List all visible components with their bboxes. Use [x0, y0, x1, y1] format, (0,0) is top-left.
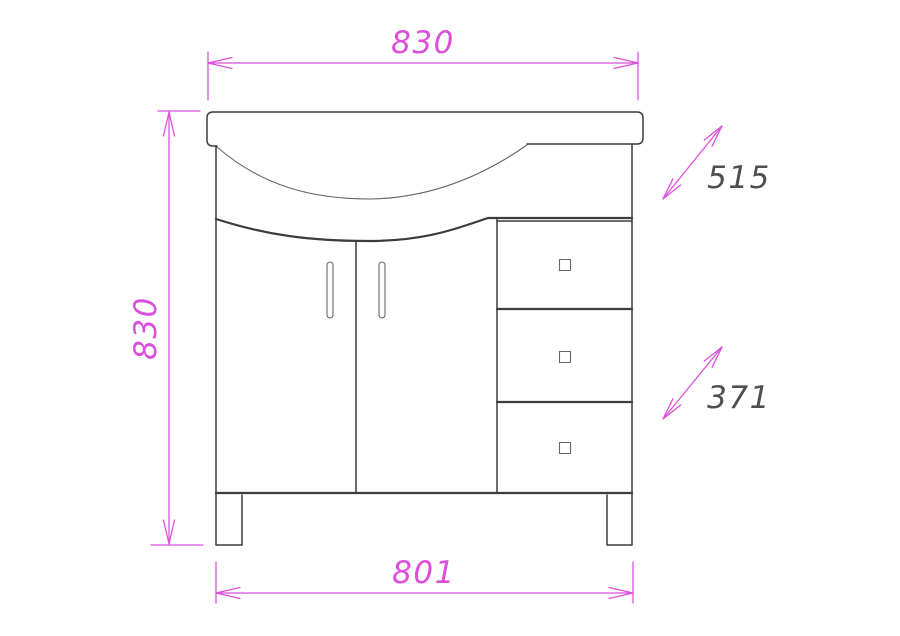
bottom-width-label: 801	[392, 555, 456, 591]
left-door-handle	[327, 262, 333, 318]
top-width-label: 830	[391, 25, 455, 61]
dimension-lines-group	[151, 52, 722, 603]
left-height-label: 830	[128, 296, 164, 360]
drawer-knob-2	[560, 352, 571, 363]
right-door-handle	[379, 262, 385, 318]
cabinet-outline-group	[207, 112, 643, 545]
upper-diagonal-depth-label: 515	[707, 160, 771, 196]
vanity-dimension-drawing: 830 830 801 515 371	[0, 0, 900, 636]
left-leg	[216, 493, 242, 545]
basin-bowl-curve	[217, 145, 527, 199]
basin-rim-outline	[207, 112, 643, 146]
drawing-canvas: 830 830 801 515 371	[0, 0, 900, 636]
drawer-knob-3	[560, 443, 571, 454]
drawer-knob-1	[560, 260, 571, 271]
lower-diagonal-depth-label: 371	[707, 380, 771, 416]
right-leg	[607, 493, 632, 545]
